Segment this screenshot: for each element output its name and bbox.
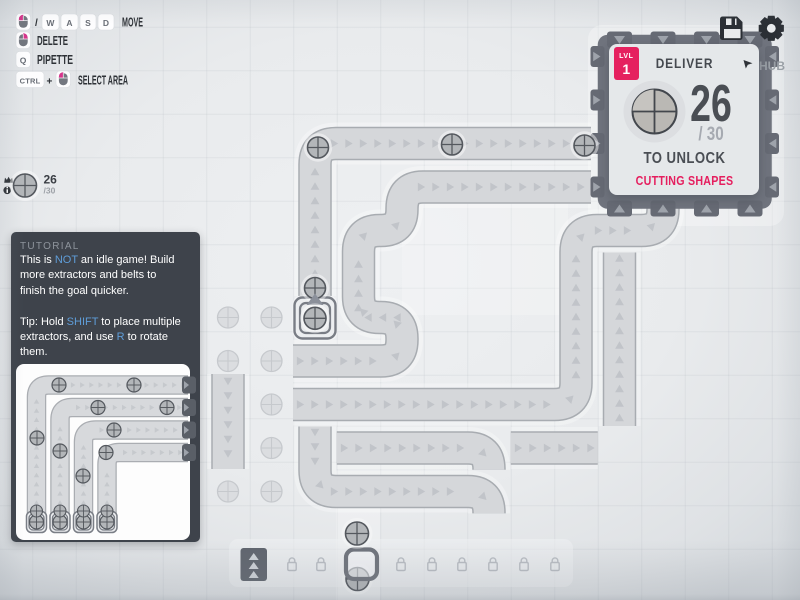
svg-text:+: + — [47, 77, 53, 88]
svg-text:SELECT AREA: SELECT AREA — [78, 74, 128, 88]
svg-text:Q: Q — [20, 55, 27, 65]
svg-text:PIPETTE: PIPETTE — [37, 53, 73, 67]
svg-text:/: / — [35, 18, 38, 29]
svg-text:MOVE: MOVE — [122, 16, 143, 30]
svg-text:CTRL: CTRL — [20, 76, 41, 85]
svg-text:D: D — [103, 18, 109, 28]
svg-text:DELETE: DELETE — [37, 34, 68, 48]
svg-text:A: A — [66, 18, 72, 28]
svg-text:26: 26 — [44, 173, 58, 187]
svg-text:W: W — [46, 18, 55, 28]
svg-text:/30: /30 — [44, 186, 56, 196]
svg-text:HUB: HUB — [759, 59, 785, 73]
svg-text:S: S — [85, 18, 91, 28]
